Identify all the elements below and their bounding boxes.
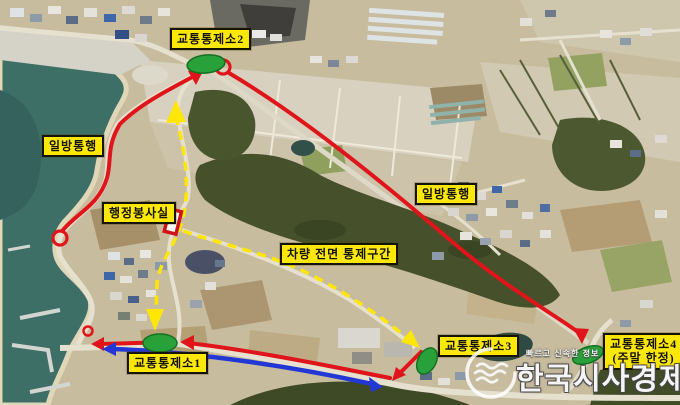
label-admin-service-office: 행정봉사실 [102,202,176,224]
label-traffic-control-post-1: 교통통제소1 [127,352,208,374]
label-text: 교통통제소1 [134,356,201,370]
label-text: 차량 전면 통제구간 [287,247,391,261]
label-text: 교통통제소3 [445,339,512,353]
label-one-way-right: 일방통행 [415,183,477,205]
label-text-line2: (주말 한정) [610,351,677,365]
label-text: 교통통제소2 [177,32,244,46]
label-text: 일방통행 [49,139,97,153]
label-text: 일방통행 [422,187,470,201]
label-traffic-control-post-3: 교통통제소3 [438,335,519,357]
label-text: 행정봉사실 [109,206,169,220]
control-point-1-marker [143,334,177,352]
aerial-traffic-control-map: 교통통제소2 일방통행 행정봉사실 차량 전면 통제구간 일방통행 교통통제소1… [0,0,680,405]
label-traffic-control-post-4: 교통통제소4 (주말 한정) [603,333,680,370]
label-one-way-left: 일방통행 [42,135,104,157]
label-traffic-control-post-2: 교통통제소2 [170,28,251,50]
label-text-line1: 교통통제소4 [610,337,677,351]
label-vehicle-full-control-zone: 차량 전면 통제구간 [280,243,398,265]
